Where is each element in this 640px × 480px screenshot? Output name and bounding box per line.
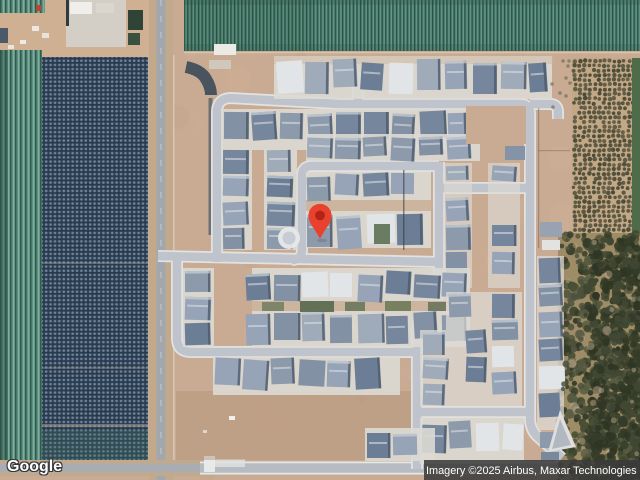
svg-text:Imagery ©2025 Airbus, Maxar Te: Imagery ©2025 Airbus, Maxar Technologies — [426, 465, 637, 477]
